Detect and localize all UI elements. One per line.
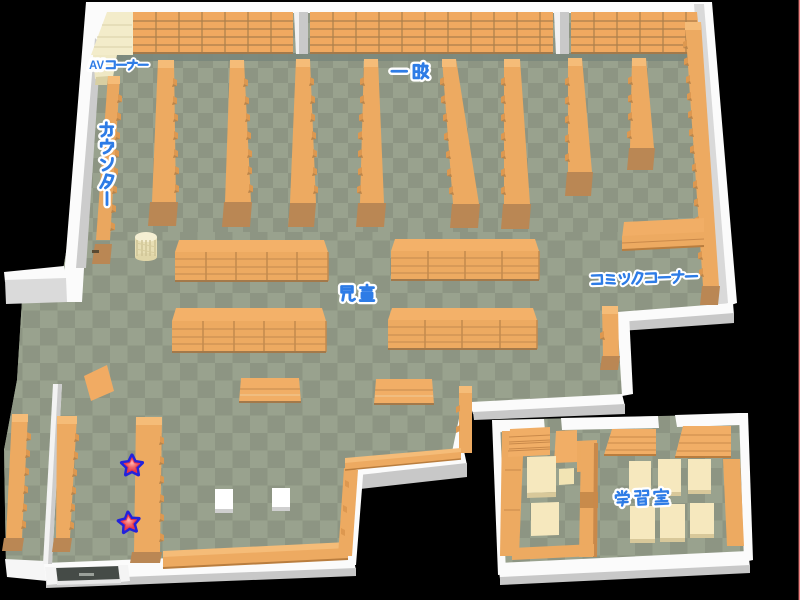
svg-text:AV: AV <box>89 60 104 72</box>
